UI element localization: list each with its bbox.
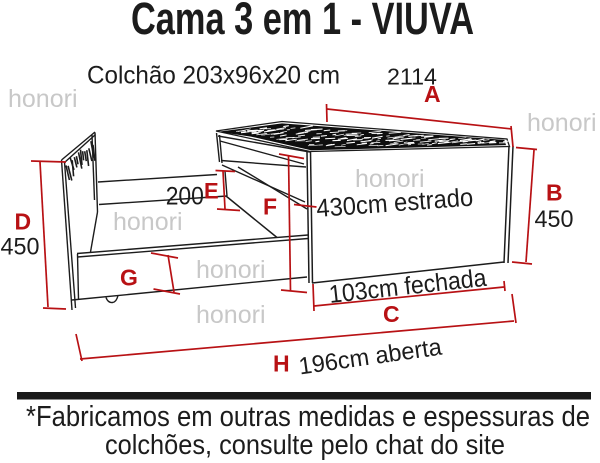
svg-text:D: D [15, 209, 32, 235]
svg-text:B: B [546, 180, 563, 206]
svg-text:C: C [383, 301, 400, 327]
svg-text:450: 450 [1, 234, 40, 261]
svg-text:honori: honori [113, 208, 183, 236]
svg-text:colchões, consulte pelo chat d: colchões, consulte pelo chat do site [105, 429, 505, 460]
svg-text:E: E [204, 179, 219, 204]
svg-text:450: 450 [535, 206, 574, 233]
svg-text:Cama 3 em 1 - VIUVA: Cama 3 em 1 - VIUVA [131, 0, 474, 44]
svg-text:2114: 2114 [387, 64, 437, 90]
svg-text:200: 200 [166, 182, 204, 210]
svg-text:Colchão 203x96x20 cm: Colchão 203x96x20 cm [87, 62, 340, 90]
svg-text:honori: honori [196, 256, 266, 284]
svg-text:F: F [263, 194, 277, 220]
svg-text:G: G [120, 265, 138, 291]
svg-text:H: H [273, 351, 290, 377]
svg-text:honori: honori [196, 301, 266, 329]
svg-text:honori: honori [8, 85, 78, 113]
svg-text:honori: honori [527, 109, 597, 137]
